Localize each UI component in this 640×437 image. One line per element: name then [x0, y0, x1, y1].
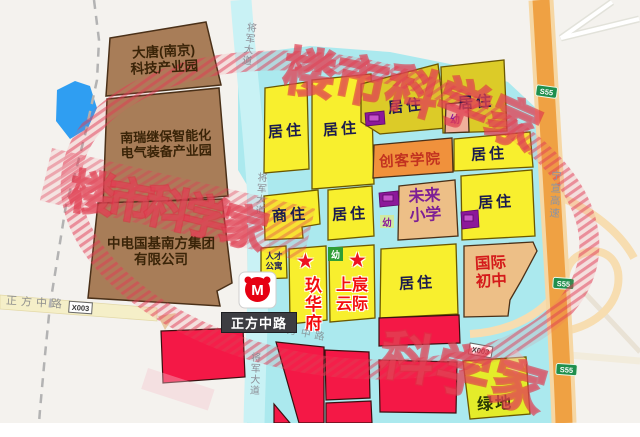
star-icon: ★: [348, 248, 367, 273]
parcel-residential-7: [461, 170, 535, 240]
metro-letter: M: [251, 282, 264, 299]
image-bottom-margin: [0, 423, 640, 437]
parcel-residential-6: [328, 186, 374, 240]
badge-label: X003: [71, 303, 89, 313]
parcel-red-5: [326, 401, 372, 423]
county-road-badge-west: X003: [69, 301, 93, 314]
school-marker-3-accent: [464, 215, 473, 221]
parcel-red-7: [379, 315, 460, 346]
shield-label: S55: [539, 87, 553, 98]
parcel-future-primary: [398, 180, 458, 240]
school-marker-1-accent: [369, 115, 379, 121]
planning-map: M S55 S55 S55 X003 X003 南京磁谷 科技股份有限公司 大唐…: [0, 0, 640, 437]
metro-station-icon: M: [239, 272, 276, 308]
parcel-residential-8: [380, 244, 458, 318]
parcel-residential-1: [264, 82, 309, 173]
expressway-shield-top: S55: [535, 85, 557, 99]
expressway-shield-bottom: S55: [556, 363, 578, 375]
star-icon: ★: [296, 249, 315, 274]
shield-label: S55: [560, 365, 574, 375]
parcel-maker-college: [373, 138, 453, 178]
school-marker-2-accent: [383, 195, 393, 201]
map-shapes-layer: M S55 S55 S55 X003 X003: [0, 0, 640, 437]
